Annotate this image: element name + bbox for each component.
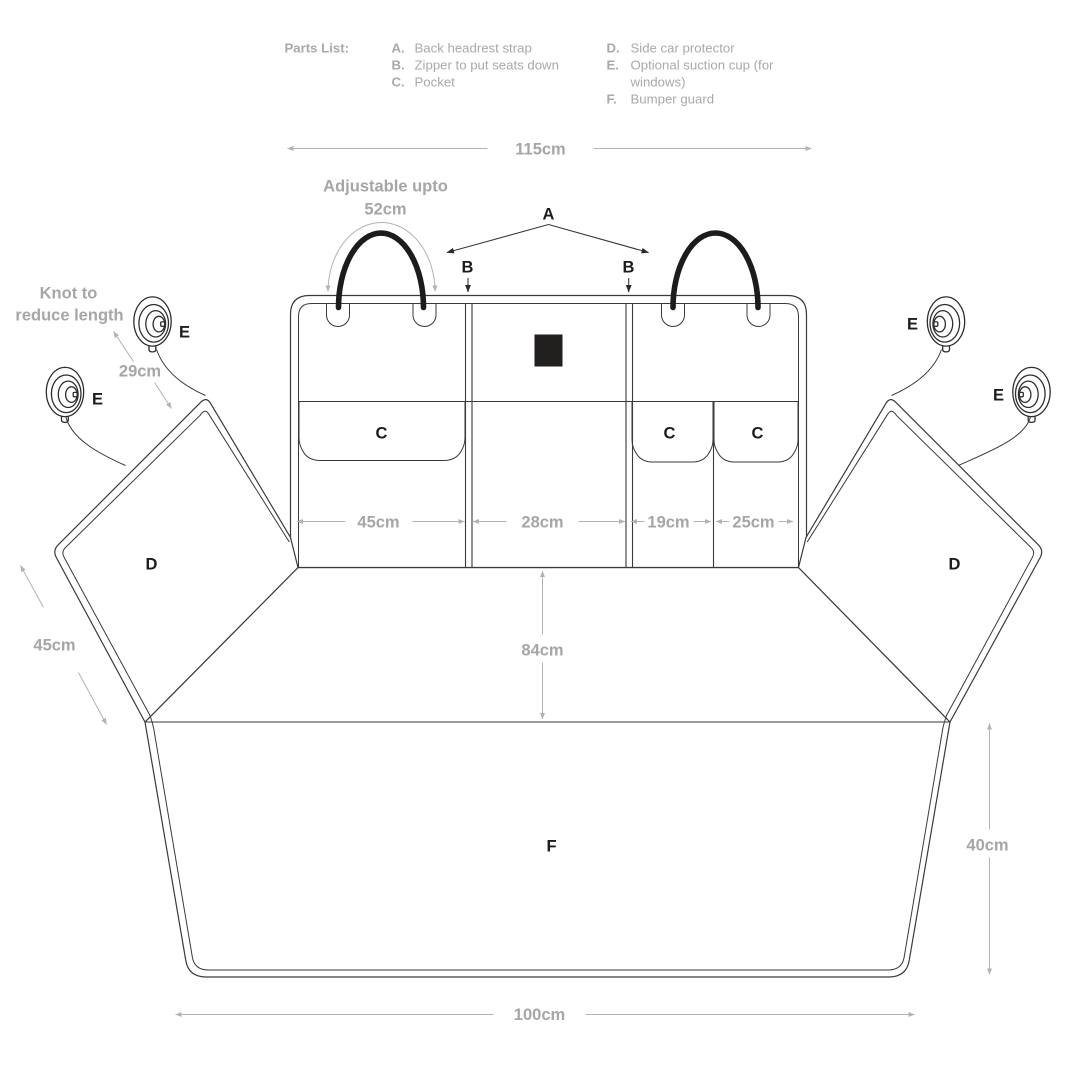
svg-text:reduce length: reduce length — [15, 307, 123, 325]
svg-text:C: C — [664, 425, 676, 443]
svg-text:C: C — [752, 425, 764, 443]
svg-text:Bumper guard: Bumper guard — [631, 92, 715, 107]
svg-text:E: E — [993, 387, 1004, 405]
svg-text:D.: D. — [607, 41, 620, 56]
svg-text:52cm: 52cm — [364, 201, 406, 219]
svg-text:Parts List:: Parts List: — [285, 41, 350, 56]
svg-text:C.: C. — [392, 75, 405, 90]
svg-text:windows): windows) — [630, 75, 686, 90]
svg-text:Knot to: Knot to — [40, 285, 98, 303]
svg-text:Back headrest strap: Back headrest strap — [415, 41, 532, 56]
svg-text:100cm: 100cm — [514, 1006, 565, 1024]
svg-text:E: E — [907, 316, 918, 334]
svg-text:Pocket: Pocket — [415, 75, 456, 90]
svg-text:Optional suction cup (for: Optional suction cup (for — [631, 58, 775, 73]
svg-text:E: E — [92, 391, 103, 409]
svg-text:28cm: 28cm — [521, 514, 563, 532]
svg-text:F: F — [546, 838, 556, 856]
svg-text:B.: B. — [392, 58, 405, 73]
svg-text:E: E — [179, 324, 190, 342]
svg-text:D: D — [949, 556, 961, 574]
svg-text:45cm: 45cm — [357, 514, 399, 532]
svg-text:D: D — [146, 556, 158, 574]
svg-text:Zipper to put seats down: Zipper to put seats down — [415, 58, 559, 73]
svg-text:C: C — [376, 425, 388, 443]
svg-text:F.: F. — [607, 92, 617, 107]
svg-text:Adjustable upto: Adjustable upto — [323, 178, 448, 196]
svg-text:B: B — [462, 259, 474, 277]
svg-text:B: B — [623, 259, 635, 277]
svg-text:19cm: 19cm — [647, 514, 689, 532]
svg-text:A: A — [543, 206, 555, 224]
svg-text:115cm: 115cm — [515, 141, 565, 159]
svg-text:40cm: 40cm — [966, 837, 1008, 855]
svg-text:Side car protector: Side car protector — [631, 41, 736, 56]
svg-text:A.: A. — [392, 41, 405, 56]
svg-text:E.: E. — [607, 58, 619, 73]
svg-text:45cm: 45cm — [33, 637, 75, 655]
svg-text:29cm: 29cm — [119, 363, 161, 381]
svg-text:84cm: 84cm — [521, 642, 563, 660]
svg-text:25cm: 25cm — [732, 514, 774, 532]
